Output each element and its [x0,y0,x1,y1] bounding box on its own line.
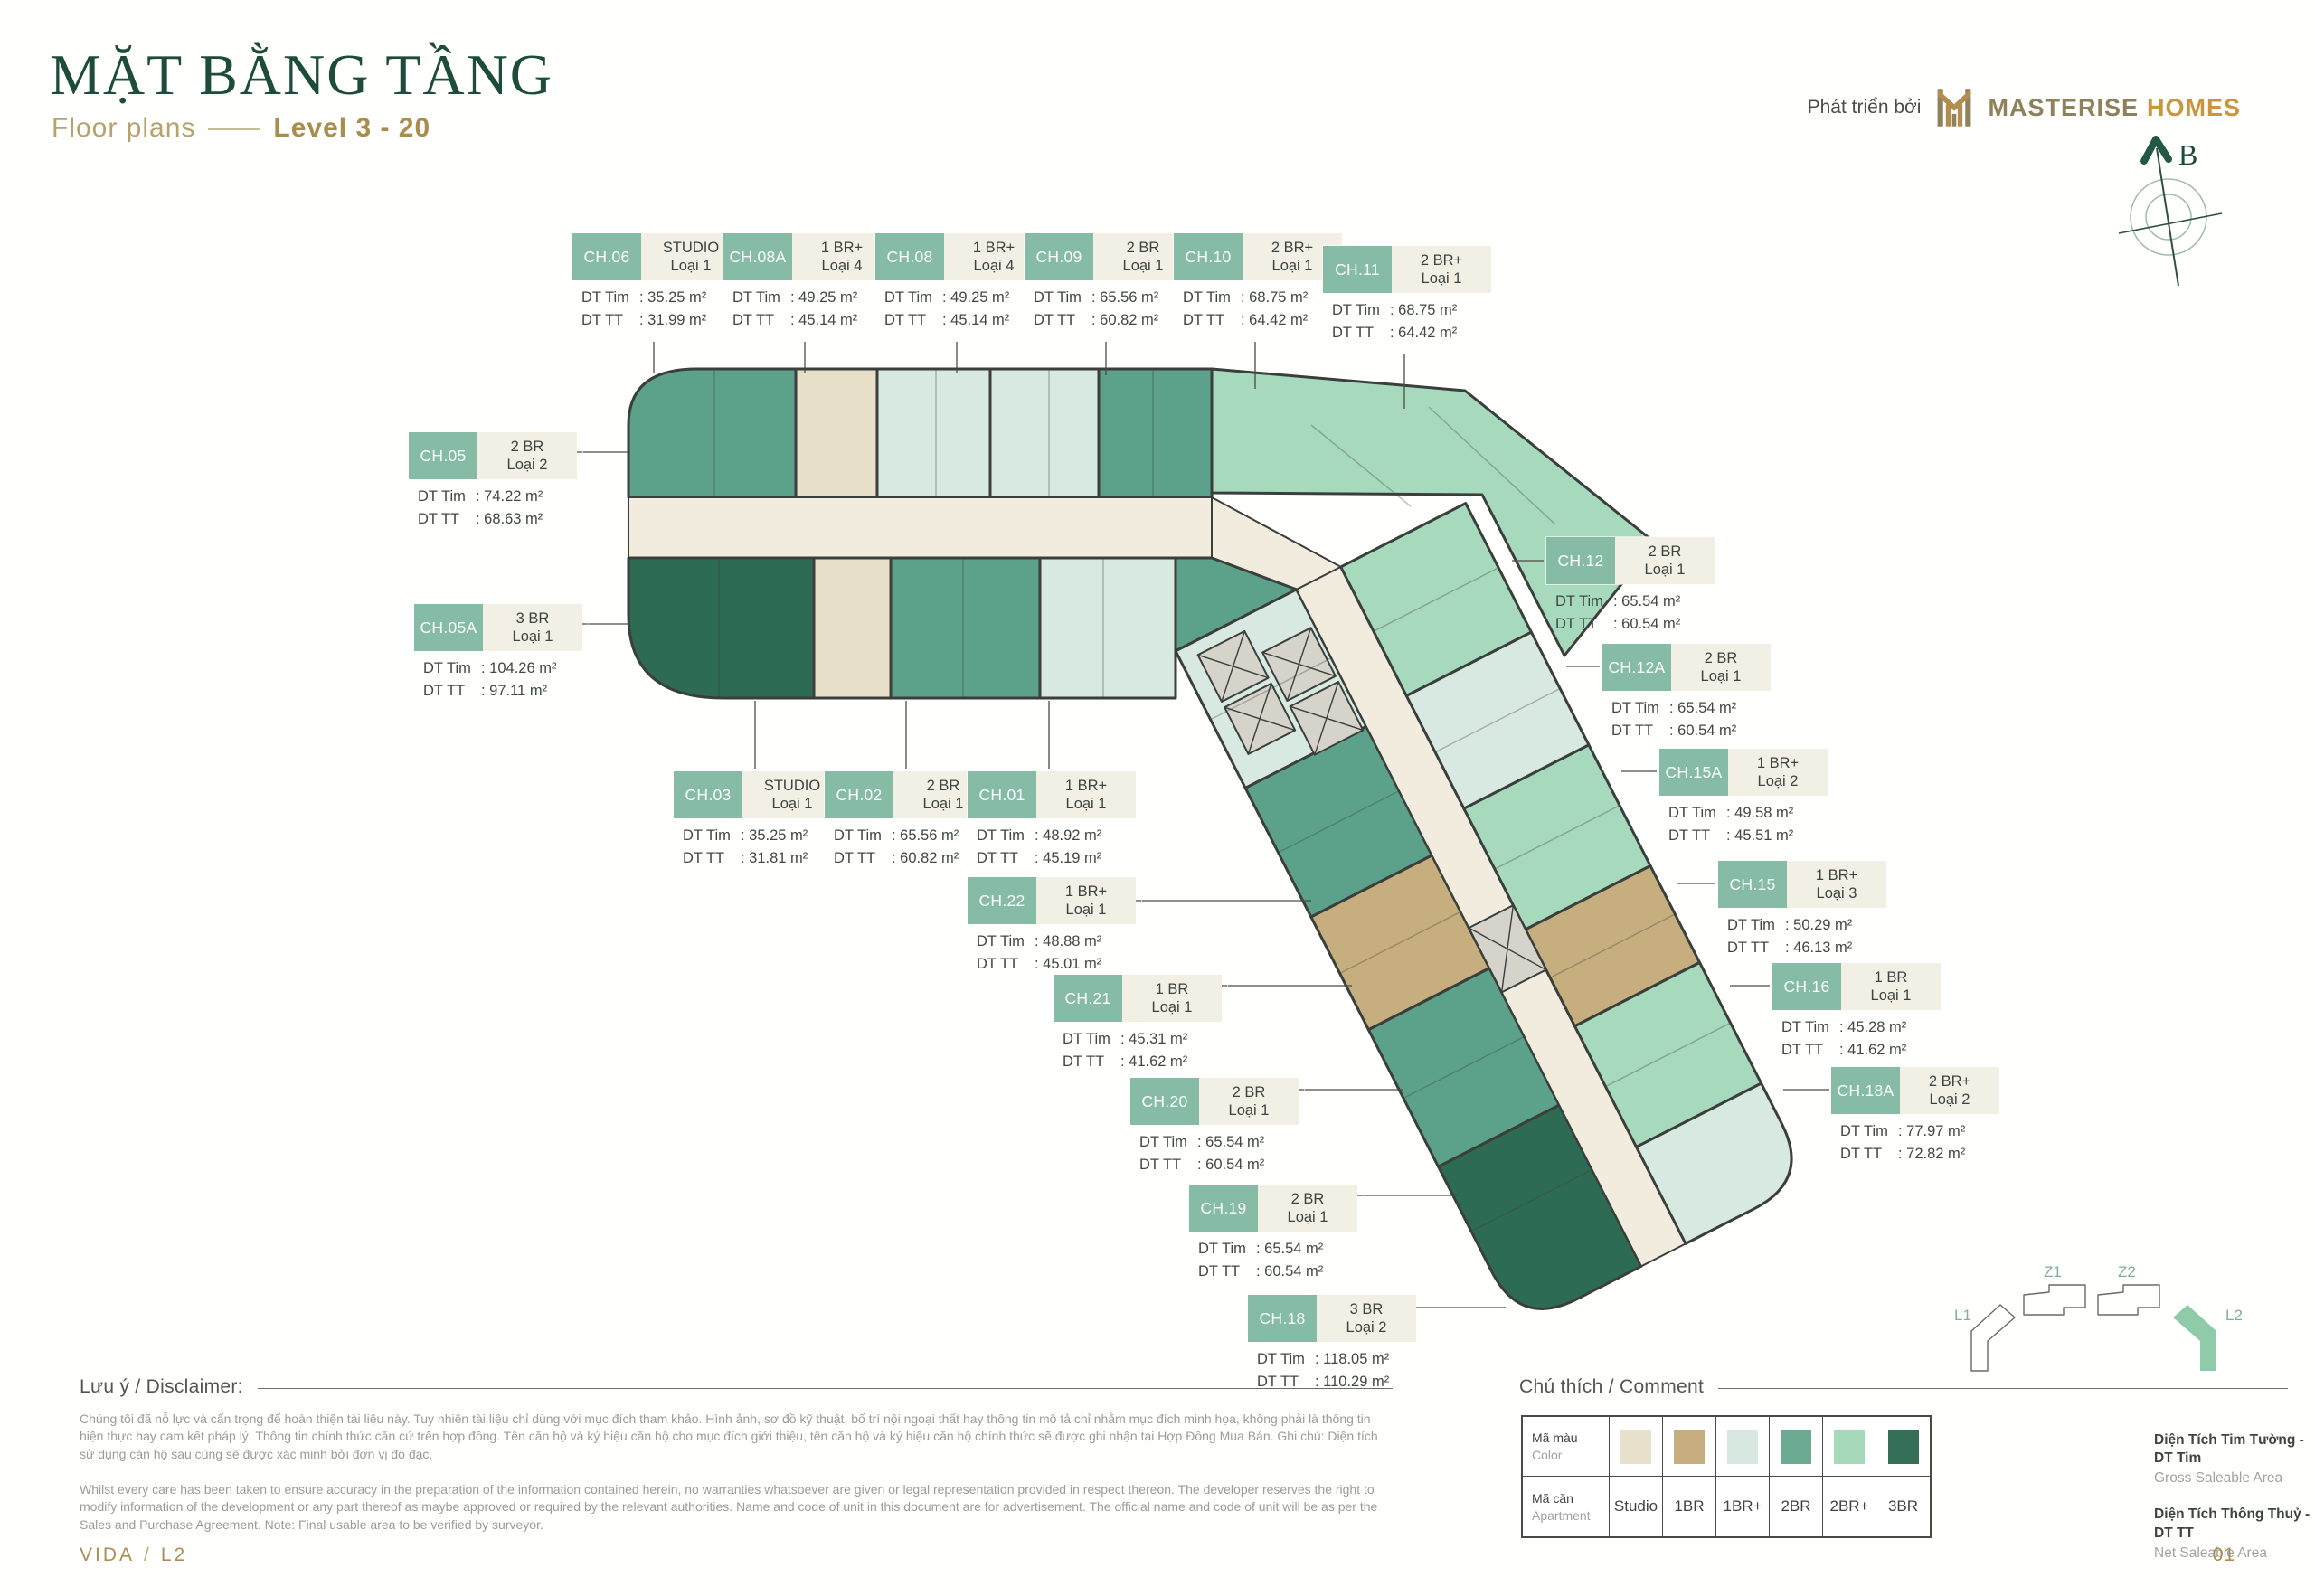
unit-chip: CH.22 1 BR+ Loại 1 [968,877,1141,924]
unit-type: 3 BR Loại 2 [1317,1295,1416,1342]
unit-type-variant: Loại 1 [1871,987,1912,1005]
unit-label: CH.15 1 BR+ Loại 3 DT Tim: 50.29 m² DT T… [1718,861,1892,959]
unit-type-name: 1 BR+ [1065,777,1107,795]
legend-apartment-type: 2BR+ [1823,1477,1876,1536]
unit-code: CH.19 [1189,1185,1258,1232]
page-subtitle: Floor plans [52,113,195,144]
unit-area-net: DT TT: 60.54 m² [1611,720,1776,742]
unit-code: CH.03 [674,771,742,818]
developer-block: Phát triển bởi MASTERISEHOMES [1808,83,2241,132]
unit-type-name: 1 BR+ [1757,754,1799,772]
unit-type-variant: Loại 1 [1066,795,1107,813]
unit-chip: CH.05 2 BR Loại 2 [409,432,582,479]
unit-chip: CH.06 STUDIO Loại 1 [572,233,746,280]
unit-chip: CH.18 3 BR Loại 2 [1248,1295,1422,1342]
unit-area-gross: DT Tim: 104.26 m² [423,657,588,680]
unit-type: 3 BR Loại 1 [483,604,582,651]
unit-type-name: 1 BR+ [973,239,1015,257]
unit-type-name: 1 BR+ [1816,866,1857,884]
page-subtitle-row: Floor plans Level 3 - 20 [52,113,430,144]
unit-area-net: DT TT: 60.54 m² [1555,613,1720,636]
unit-label: CH.08 1 BR+ Loại 4 DT Tim: 49.25 m² DT T… [875,233,1049,332]
unit-label: CH.09 2 BR Loại 1 DT Tim: 65.56 m² DT TT… [1025,233,1198,332]
unit-type-variant: Loại 2 [1346,1318,1387,1336]
unit-area-gross: DT Tim: 49.58 m² [1668,802,1833,825]
footer-project: VIDA/L2 [80,1544,187,1566]
unit-label: CH.11 2 BR+ Loại 1 DT Tim: 68.75 m² DT T… [1323,246,1497,345]
unit-chip: CH.09 2 BR Loại 1 [1025,233,1198,280]
unit-type-name: 2 BR+ [1421,251,1462,269]
disclaimer-heading-row: Lưu ý / Disclaimer: [80,1376,1393,1398]
legend-notes: Diện Tích Tim Tường - DT Tim Gross Salea… [2154,1431,2315,1563]
zone-label-z2: Z2 [2118,1263,2136,1280]
unit-label: CH.16 1 BR Loại 1 DT Tim: 45.28 m² DT TT… [1772,963,1946,1062]
legend-color-swatch [1823,1417,1876,1477]
footer-divider: / [144,1544,152,1565]
unit-type-variant: Loại 1 [1229,1101,1270,1119]
unit-chip: CH.01 1 BR+ Loại 1 [968,771,1141,818]
unit-area-net: DT TT: 31.81 m² [683,847,847,870]
page-number: 01 [2213,1544,2235,1566]
legend-heading: Chú thích / Comment [1519,1376,1704,1398]
unit-area-gross: DT Tim: 45.31 m² [1063,1028,1227,1051]
zone-label-l2: L2 [2225,1307,2243,1324]
unit-type-variant: Loại 1 [1272,257,1313,275]
unit-type-variant: Loại 1 [772,795,813,813]
unit-code: CH.15 [1718,861,1787,908]
legend-apartment-type: 2BR [1770,1477,1823,1536]
unit-type-name: 1 BR+ [821,239,863,257]
unit-label: CH.21 1 BR Loại 1 DT Tim: 45.31 m² DT TT… [1054,975,1227,1073]
unit-areas: DT Tim: 49.25 m² DT TT: 45.14 m² [875,280,1049,332]
unit-area-gross: DT Tim: 74.22 m² [418,486,582,508]
floor-plan-page: MẶT BẰNG TẦNG Floor plans Level 3 - 20 P… [0,0,2315,1596]
unit-chip: CH.08 1 BR+ Loại 4 [875,233,1049,280]
color-swatch [1620,1430,1651,1464]
zone-mini-map: L1 Z1 Z2 L2 [1951,1262,2295,1389]
unit-code: CH.18A [1831,1067,1900,1114]
unit-chip: CH.12A 2 BR Loại 1 [1602,644,1776,691]
legend-color-row-label: Mã màuColor [1523,1417,1610,1477]
unit-area-net: DT TT: 60.54 m² [1198,1261,1363,1283]
unit-code: CH.01 [968,771,1036,818]
unit-chip: CH.11 2 BR+ Loại 1 [1323,246,1497,293]
unit-chip: CH.03 STUDIO Loại 1 [674,771,847,818]
legend-color-swatch [1610,1417,1663,1477]
unit-type-variant: Loại 1 [1066,901,1107,919]
unit-areas: DT Tim: 35.25 m² DT TT: 31.99 m² [572,280,746,332]
unit-label: CH.12 2 BR Loại 1 DT Tim: 65.54 m² DT TT… [1546,537,1720,636]
compass-label: B [2178,138,2197,171]
color-swatch [1674,1430,1705,1464]
unit-code: CH.10 [1174,233,1243,280]
unit-code: CH.08A [723,233,792,280]
legend-apartment-type: 1BR+ [1716,1477,1770,1536]
unit-type-name: 2 BR+ [1271,239,1313,257]
unit-code: CH.11 [1323,246,1392,293]
unit-area-net: DT TT: 31.99 m² [581,309,746,332]
unit-area-gross: DT Tim: 48.92 m² [977,825,1141,847]
unit-area-net: DT TT: 45.51 m² [1668,825,1833,847]
unit-type-variant: Loại 2 [1758,772,1799,790]
unit-label: CH.18A 2 BR+ Loại 2 DT Tim: 77.97 m² DT … [1831,1067,2005,1166]
unit-code: CH.12 [1546,537,1615,584]
unit-chip: CH.15 1 BR+ Loại 3 [1718,861,1892,908]
unit-label: CH.08A 1 BR+ Loại 4 DT Tim: 49.25 m² DT … [723,233,897,332]
compass-north-icon: B [2102,127,2238,294]
unit-areas: DT Tim: 65.54 m² DT TT: 60.54 m² [1602,691,1776,742]
unit-code: CH.02 [825,771,893,818]
unit-type: 2 BR Loại 1 [1199,1078,1299,1125]
unit-area-gross: DT Tim: 68.75 m² [1332,299,1497,322]
color-swatch [1727,1430,1758,1464]
unit-area-gross: DT Tim: 77.97 m² [1840,1120,2005,1143]
unit-type-name: 1 BR [1156,980,1189,998]
unit-label: CH.03 STUDIO Loại 1 DT Tim: 35.25 m² DT … [674,771,847,870]
unit-areas: DT Tim: 74.22 m² DT TT: 68.63 m² [409,479,582,531]
unit-label: CH.01 1 BR+ Loại 1 DT Tim: 48.92 m² DT T… [968,771,1141,870]
unit-areas: DT Tim: 77.97 m² DT TT: 72.82 m² [1831,1114,2005,1166]
unit-area-gross: DT Tim: 65.54 m² [1139,1131,1304,1154]
disclaimer-text-en: Whilst every care has been taken to ensu… [80,1481,1395,1534]
developer-prefix: Phát triển bởi [1808,97,1922,118]
unit-type-variant: Loại 1 [1645,561,1686,579]
unit-areas: DT Tim: 45.31 m² DT TT: 41.62 m² [1054,1022,1227,1073]
unit-areas: DT Tim: 49.58 m² DT TT: 45.51 m² [1659,796,1833,847]
disclaimer-text-vn: Chúng tôi đã nỗ lực và cẩn trọng để hoàn… [80,1411,1395,1463]
unit-area-net: DT TT: 41.62 m² [1781,1039,1946,1062]
unit-type-variant: Loại 2 [1930,1091,1970,1109]
unit-areas: DT Tim: 65.54 m² DT TT: 60.54 m² [1130,1125,1304,1176]
unit-area-gross: DT Tim: 50.29 m² [1727,914,1892,937]
unit-area-gross: DT Tim: 48.88 m² [977,930,1141,953]
unit-areas: DT Tim: 68.75 m² DT TT: 64.42 m² [1174,280,1347,332]
masterise-logo-icon [1933,83,1975,132]
developer-name: MASTERISEHOMES [1988,94,2241,122]
unit-chip: CH.21 1 BR Loại 1 [1054,975,1227,1022]
unit-areas: DT Tim: 104.26 m² DT TT: 97.11 m² [414,651,588,703]
unit-type-variant: Loại 1 [671,257,712,275]
legend-color-swatch [1663,1417,1716,1477]
unit-label: CH.22 1 BR+ Loại 1 DT Tim: 48.88 m² DT T… [968,877,1141,976]
unit-areas: DT Tim: 65.54 m² DT TT: 60.54 m² [1546,584,1720,636]
unit-area-gross: DT Tim: 65.54 m² [1611,697,1776,720]
unit-type-name: 3 BR [516,609,550,628]
unit-label: CH.05A 3 BR Loại 1 DT Tim: 104.26 m² DT … [414,604,588,703]
zone-z2-shape [2098,1285,2159,1315]
unit-type: 1 BR+ Loại 2 [1728,749,1828,796]
unit-code: CH.21 [1054,975,1122,1022]
unit-label: CH.12A 2 BR Loại 1 DT Tim: 65.54 m² DT T… [1602,644,1776,742]
unit-code: CH.22 [968,877,1036,924]
unit-type: 2 BR Loại 1 [1258,1185,1357,1232]
unit-label: CH.06 STUDIO Loại 1 DT Tim: 35.25 m² DT … [572,233,746,332]
unit-type: 2 BR Loại 1 [1671,644,1771,691]
zone-label-l1: L1 [1954,1307,1971,1324]
unit-area-gross: DT Tim: 49.25 m² [732,287,897,309]
unit-type-variant: Loại 1 [1701,667,1742,685]
unit-code: CH.06 [572,233,641,280]
unit-area-gross: DT Tim: 35.25 m² [683,825,847,847]
unit-chip: CH.18A 2 BR+ Loại 2 [1831,1067,2005,1114]
unit-type: 2 BR+ Loại 2 [1900,1067,1999,1114]
unit-type-variant: Loại 1 [923,795,964,813]
subtitle-divider-line [208,128,260,130]
legend-apartment-row-label: Mã cănApartment [1523,1477,1610,1536]
unit-type-name: 3 BR [1350,1300,1384,1318]
unit-chip: CH.15A 1 BR+ Loại 2 [1659,749,1833,796]
unit-areas: DT Tim: 35.25 m² DT TT: 31.81 m² [674,818,847,870]
unit-type: 1 BR+ Loại 1 [1036,771,1136,818]
unit-area-gross: DT Tim: 65.54 m² [1198,1238,1363,1261]
unit-type: 1 BR Loại 1 [1122,975,1222,1022]
unit-code: CH.09 [1025,233,1093,280]
unit-areas: DT Tim: 48.88 m² DT TT: 45.01 m² [968,924,1141,976]
unit-areas: DT Tim: 45.28 m² DT TT: 41.62 m² [1772,1010,1946,1062]
legend-apartment-type: 3BR [1876,1477,1930,1536]
unit-type-name: 2 BR [1233,1083,1266,1101]
zone-l1-shape [1971,1305,2015,1371]
unit-type-variant: Loại 1 [513,628,553,646]
unit-chip: CH.19 2 BR Loại 1 [1189,1185,1363,1232]
unit-area-gross: DT Tim: 118.05 m² [1257,1348,1422,1371]
unit-label: CH.05 2 BR Loại 2 DT Tim: 74.22 m² DT TT… [409,432,582,531]
unit-code: CH.16 [1772,963,1841,1010]
unit-label: CH.10 2 BR+ Loại 1 DT Tim: 68.75 m² DT T… [1174,233,1347,332]
unit-type-variant: Loại 3 [1817,884,1857,902]
unit-areas: DT Tim: 49.25 m² DT TT: 45.14 m² [723,280,897,332]
color-swatch [1888,1430,1919,1464]
level-label: Level 3 - 20 [273,113,430,144]
unit-type-variant: Loại 4 [822,257,863,275]
unit-type-variant: Loại 4 [974,257,1015,275]
unit-chip: CH.08A 1 BR+ Loại 4 [723,233,897,280]
unit-code: CH.12A [1602,644,1671,691]
unit-chip: CH.12 2 BR Loại 1 [1546,537,1720,584]
unit-areas: DT Tim: 48.92 m² DT TT: 45.19 m² [968,818,1141,870]
unit-area-net: DT TT: 97.11 m² [423,680,588,703]
unit-chip: CH.05A 3 BR Loại 1 [414,604,588,651]
unit-type: 1 BR+ Loại 3 [1787,861,1886,908]
unit-code: CH.15A [1659,749,1728,796]
unit-chip: CH.20 2 BR Loại 1 [1130,1078,1304,1125]
unit-area-gross: DT Tim: 65.54 m² [1555,590,1720,613]
developer-name-1: MASTERISE [1988,94,2139,121]
unit-code: CH.08 [875,233,944,280]
unit-type: 2 BR Loại 1 [1615,537,1715,584]
legend-apartment-type: Studio [1610,1477,1663,1536]
zone-l2-shape [2173,1305,2216,1371]
disclaimer-rule [258,1388,1393,1389]
unit-type: 1 BR+ Loại 1 [1036,877,1136,924]
unit-code: CH.05A [414,604,483,651]
unit-area-net: DT TT: 46.13 m² [1727,937,1892,959]
unit-type: 1 BR Loại 1 [1841,963,1941,1010]
unit-label: CH.19 2 BR Loại 1 DT Tim: 65.54 m² DT TT… [1189,1185,1363,1283]
color-swatch [1781,1430,1811,1464]
unit-area-net: DT TT: 45.01 m² [977,953,1141,976]
unit-areas: DT Tim: 65.56 m² DT TT: 60.82 m² [1025,280,1198,332]
unit-label: CH.20 2 BR Loại 1 DT Tim: 65.54 m² DT TT… [1130,1078,1304,1176]
unit-type-variant: Loại 1 [1422,269,1462,288]
color-swatch [1834,1430,1865,1464]
unit-type-name: 1 BR [1875,968,1908,987]
unit-type-name: 2 BR [1291,1190,1325,1208]
footer-project-name: VIDA [80,1544,135,1565]
zone-label-z1: Z1 [2044,1263,2062,1280]
unit-area-net: DT TT: 45.14 m² [732,309,897,332]
unit-type-name: STUDIO [764,777,820,795]
unit-type-name: 2 BR [511,438,544,456]
unit-code: CH.05 [409,432,477,479]
unit-chip: CH.16 1 BR Loại 1 [1772,963,1946,1010]
unit-areas: DT Tim: 65.54 m² DT TT: 60.54 m² [1189,1232,1363,1283]
unit-areas: DT Tim: 50.29 m² DT TT: 46.13 m² [1718,908,1892,959]
unit-type-variant: Loại 1 [1123,257,1164,275]
unit-type-name: STUDIO [663,239,719,257]
unit-areas: DT Tim: 68.75 m² DT TT: 64.42 m² [1323,293,1497,345]
unit-type-name: 2 BR [1127,239,1160,257]
unit-type-name: 2 BR [1649,543,1682,561]
unit-type-variant: Loại 2 [507,456,548,474]
unit-area-net: DT TT: 64.42 m² [1332,322,1497,345]
legend-color-swatch [1770,1417,1823,1477]
unit-type: 2 BR+ Loại 1 [1392,246,1491,293]
legend-color-swatch [1716,1417,1770,1477]
unit-label: CH.15A 1 BR+ Loại 2 DT Tim: 49.58 m² DT … [1659,749,1833,847]
zone-z1-shape [2024,1285,2085,1315]
unit-area-gross: DT Tim: 45.28 m² [1781,1016,1946,1039]
unit-area-net: DT TT: 68.63 m² [418,508,582,531]
footer-zone: L2 [161,1544,187,1565]
disclaimer-heading: Lưu ý / Disclaimer: [80,1376,243,1398]
legend-color-swatch [1876,1417,1930,1477]
legend-apartment-type: 1BR [1663,1477,1716,1536]
unit-area-net: DT TT: 60.54 m² [1139,1154,1304,1176]
unit-area-net: DT TT: 41.62 m² [1063,1051,1227,1073]
page-title: MẶT BẰNG TẦNG [50,42,553,109]
unit-type-name: 2 BR+ [1929,1072,1970,1091]
unit-type-name: 2 BR [927,777,960,795]
unit-area-net: DT TT: 45.19 m² [977,847,1141,870]
developer-name-2: HOMES [2147,94,2241,121]
unit-area-net: DT TT: 72.82 m² [1840,1143,2005,1166]
legend-table: Mã màuColorMã cănApartmentStudio1BR1BR+2… [1521,1415,1932,1538]
unit-code: CH.20 [1130,1078,1199,1125]
unit-type-name: 2 BR [1705,649,1738,667]
unit-type-variant: Loại 1 [1152,998,1193,1016]
unit-type: 2 BR Loại 2 [477,432,577,479]
unit-type-name: 1 BR+ [1065,883,1107,901]
gross-area-note: Diện Tích Tim Tường - DT Tim Gross Salea… [2154,1431,2315,1487]
unit-chip: CH.10 2 BR+ Loại 1 [1174,233,1347,280]
unit-code: CH.18 [1248,1295,1317,1342]
unit-area-gross: DT Tim: 35.25 m² [581,287,746,309]
unit-type-variant: Loại 1 [1288,1208,1328,1226]
